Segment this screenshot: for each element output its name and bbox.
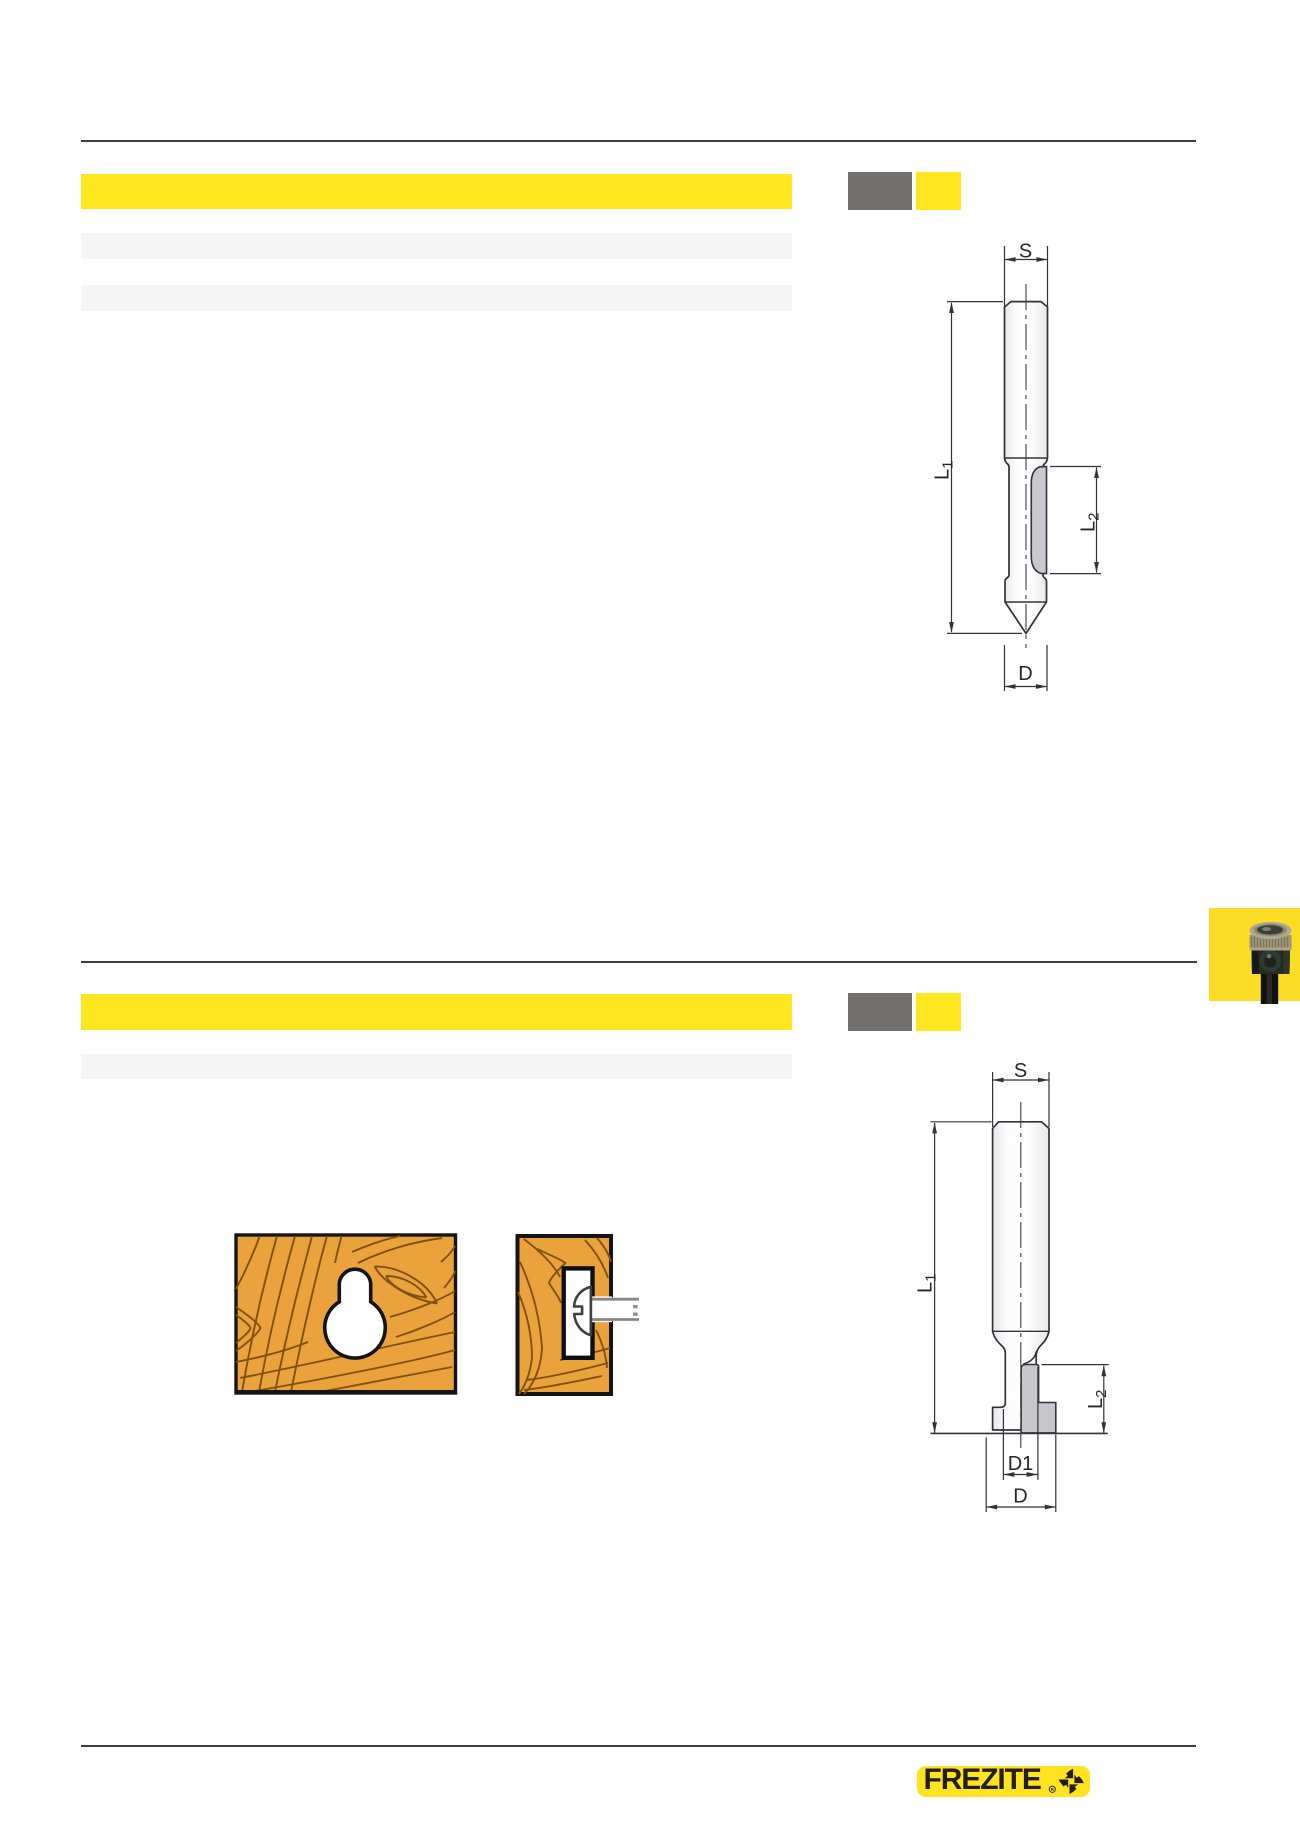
svg-text:D1: D1 [1008, 1453, 1034, 1475]
svg-text:D: D [1018, 663, 1032, 685]
svg-text:S: S [1019, 241, 1032, 263]
svg-text:S: S [1014, 1060, 1027, 1082]
svg-text:L1: L1 [915, 1274, 940, 1293]
svg-text:L2: L2 [1085, 1390, 1110, 1409]
svg-text:L2: L2 [1078, 513, 1103, 532]
svg-text:D: D [1013, 1486, 1027, 1508]
svg-text:L1: L1 [932, 461, 957, 480]
